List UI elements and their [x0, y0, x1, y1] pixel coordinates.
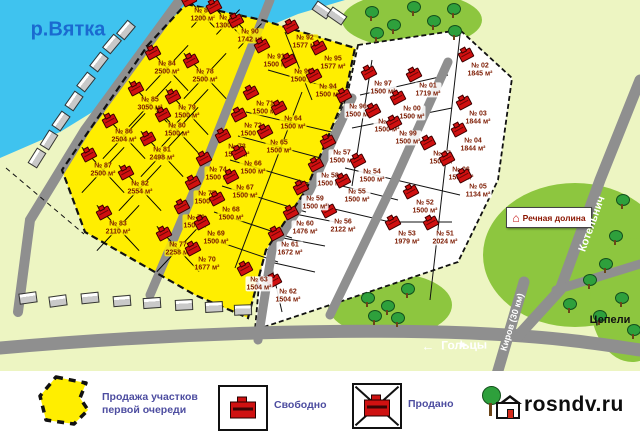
plot-label-03: № 031844 м² — [464, 110, 491, 125]
roof-icon: ⌂ — [512, 213, 519, 223]
tree-icon — [616, 194, 630, 210]
tree-icon — [563, 298, 577, 314]
plot-label-01: № 011719 м² — [414, 82, 441, 97]
rosndv-logo-text: rosndv.ru — [524, 393, 624, 417]
plot-label-56: № 562122 м² — [329, 218, 356, 233]
cepeli-label: Цепели — [590, 314, 631, 326]
plot-label-95: № 951577 м² — [319, 55, 346, 70]
tree-icon — [627, 324, 640, 340]
tree-icon — [370, 27, 384, 43]
plot-label-59: № 591500 м² — [301, 195, 328, 210]
tree-icon — [361, 292, 375, 308]
house-icon — [230, 402, 256, 419]
village-house-icon — [143, 297, 162, 309]
legend-sold-icon — [352, 383, 402, 429]
plot-label-62: № 621504 м² — [274, 288, 301, 303]
plot-label-02: № 021845 м² — [466, 62, 493, 77]
plot-label-68: № 681500 м² — [217, 206, 244, 221]
plot-label-00: № 001500 м² — [398, 105, 425, 120]
plot-label-99: № 991500 м² — [394, 130, 421, 145]
tree-icon — [368, 310, 382, 326]
tree-icon — [401, 283, 415, 299]
legend-first-phase-label: Продажа участков первой очереди — [102, 391, 198, 416]
tree-icon — [427, 15, 441, 31]
tree-icon — [448, 25, 462, 41]
plot-label-64: № 641500 м² — [279, 115, 306, 130]
first-phase-blob-icon — [34, 374, 98, 430]
golcy-road-label: Гольцы — [441, 338, 487, 353]
tree-icon — [447, 3, 461, 19]
map-legend: Продажа участков первой очереди Свободно… — [0, 371, 640, 431]
plot-label-05: № 051134 м² — [465, 183, 492, 198]
village-house-icon — [80, 292, 99, 305]
tree-icon — [615, 292, 629, 308]
tree-icon — [365, 6, 379, 22]
plot-label-55: № 551500 м² — [343, 188, 370, 203]
plot-label-84: № 842500 м² — [153, 60, 180, 75]
legend-free-label: Свободно — [274, 399, 327, 412]
plot-label-86: № 862504 м² — [110, 128, 137, 143]
tree-icon — [391, 312, 405, 328]
plot-label-04: № 041844 м² — [459, 137, 486, 152]
screenshot: р.Вятка № 881200 м²№ 891300 м²№ 901742 м… — [0, 0, 640, 431]
river-name-label: р.Вятка — [31, 19, 106, 42]
village-house-icon — [234, 304, 252, 316]
plot-label-67: № 671500 м² — [231, 184, 258, 199]
tree-icon — [583, 274, 597, 290]
plot-label-78: № 782500 м² — [191, 68, 218, 83]
plot-label-61: № 611672 м² — [276, 241, 303, 256]
tree-icon — [387, 19, 401, 35]
west-arrow-icon: ← — [422, 339, 435, 354]
plot-label-65: № 651500 м² — [265, 139, 292, 154]
plot-label-69: № 691500 м² — [202, 230, 229, 245]
village-house-icon — [205, 301, 224, 313]
legend-sold-label: Продано — [408, 398, 454, 411]
plot-label-70: № 701677 м² — [193, 256, 220, 271]
plot-label-63: № 631504 м² — [245, 276, 272, 291]
tree-icon — [407, 1, 421, 17]
village-house-icon — [113, 295, 132, 308]
plot-label-87: № 872500 м² — [89, 162, 116, 177]
tree-icon — [599, 258, 613, 274]
golcy-road — [0, 331, 640, 350]
plot-label-82: № 822554 м² — [126, 180, 153, 195]
tree-icon — [609, 230, 623, 246]
plot-label-53: № 531979 м² — [393, 230, 420, 245]
plot-label-81: № 812498 м² — [148, 146, 175, 161]
legend-free-icon — [218, 385, 268, 431]
plot-label-83: № 832110 м² — [105, 220, 132, 235]
plot-label-51: № 512024 м² — [431, 230, 458, 245]
land-plot-map: р.Вятка № 881200 м²№ 891300 м²№ 901742 м… — [0, 0, 640, 371]
rosndv-logo-icon — [482, 384, 522, 420]
plot-label-60: № 601476 м² — [291, 220, 318, 235]
plot-label-52: № 521500 м² — [411, 199, 438, 214]
plot-label-66: № 661500 м² — [239, 160, 266, 175]
rechnaya-dolina-sign: ⌂ Речная долина — [506, 207, 592, 228]
plot-label-54: № 541500 м² — [358, 168, 385, 183]
house-icon — [364, 400, 390, 417]
village-house-icon — [175, 299, 194, 311]
